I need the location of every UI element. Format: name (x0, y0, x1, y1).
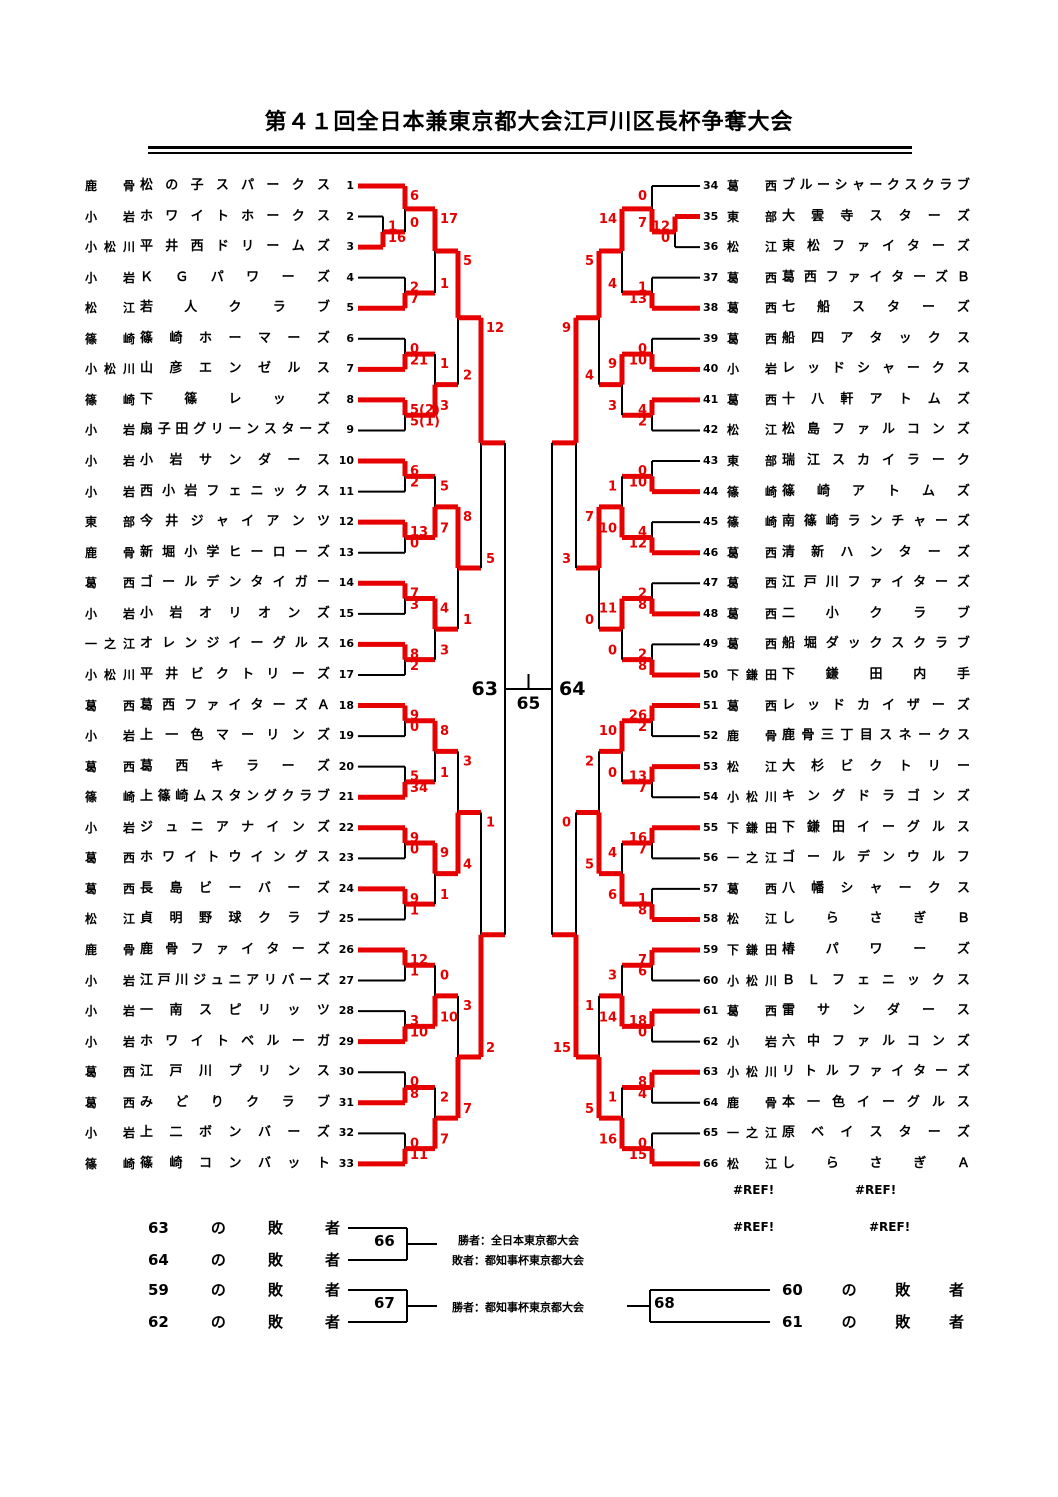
team-name-char: エ (199, 359, 212, 379)
team-name-char: ワ (165, 207, 178, 227)
team-region-char: 小 (85, 818, 97, 838)
match-score: 1 (440, 277, 449, 292)
team-name-char: ァ (206, 696, 219, 716)
team-name-char: ェ (228, 482, 241, 502)
team-name: 江戸川ジュニアリバーズ (140, 971, 330, 991)
team-name-char: ス (957, 329, 970, 349)
loser-row-text: の (211, 1250, 226, 1270)
team-seed: 55 (703, 818, 725, 838)
team-name-char: バ (282, 971, 295, 991)
loser-row: 61の敗者 (782, 1312, 964, 1332)
team-region: 東部 (727, 451, 777, 471)
team-region-char: 江 (765, 848, 777, 868)
team-name-char: ぎ (913, 1154, 926, 1174)
team-region-char: 西 (765, 329, 777, 349)
match-score: 11 (599, 602, 617, 617)
team-seed: 54 (703, 787, 725, 807)
team-name: 平井西ドリームズ (140, 237, 330, 257)
team-name-char: 戸 (804, 573, 817, 593)
match-score: 1 (440, 888, 449, 903)
team-name-char: ー (913, 940, 926, 960)
team-name-char: タ (899, 1123, 912, 1143)
team-region-char: 小 (85, 237, 97, 257)
team-name-char: フ (191, 940, 204, 960)
team-region-char: 鹿 (85, 176, 97, 196)
team-name-char: オ (258, 604, 271, 624)
team-name: ゴールデンタイガー (140, 573, 330, 593)
team-region: 葛西 (727, 1001, 777, 1021)
team-region: 葛西 (727, 298, 777, 318)
team-seed: 24 (330, 879, 354, 899)
team-name-char: ズ (317, 329, 330, 349)
team-seed: 7 (330, 359, 354, 379)
team-name-char: イ (241, 940, 254, 960)
team-region-char: 西 (765, 604, 777, 624)
team-region-char: 岩 (123, 451, 135, 471)
team-region: 小岩 (85, 482, 135, 502)
team-name-char: ら (826, 1154, 839, 1174)
team-name-char: Ａ (957, 1154, 970, 1174)
match68-label: 68 (654, 1294, 675, 1312)
team-name-char: ラ (273, 298, 286, 318)
team-name-char: ト (899, 390, 912, 410)
team-name-char: ン (932, 787, 945, 807)
team-seed: 57 (703, 879, 725, 899)
team-name-char: 田 (175, 420, 188, 440)
team-name-char: 下 (140, 390, 153, 410)
team-name: 本一色イーグルス (782, 1093, 970, 1113)
team-name-char: ク (887, 176, 900, 196)
team-region-char: 岩 (123, 726, 135, 746)
team-seed: 19 (330, 726, 354, 746)
team-region-char: 部 (765, 451, 777, 471)
team-name-char: イ (891, 1062, 904, 1082)
team-name: 大杉ビクトリー (782, 757, 970, 777)
team-name-char: Ｇ (175, 268, 188, 288)
team-region-char: 小 (85, 359, 97, 379)
loser-row-text: の (211, 1280, 226, 1300)
team-seed: 26 (330, 940, 354, 960)
team-name-char: ガ (295, 573, 308, 593)
team-name-char: ク (938, 726, 951, 746)
team-name-char: ー (918, 726, 931, 746)
team-region-char: 一 (727, 1123, 739, 1143)
team-name-char: ワ (869, 940, 882, 960)
team-name-char: 船 (817, 298, 830, 318)
team-name-char: イ (228, 696, 241, 716)
team-region-char: 崎 (123, 390, 135, 410)
team-name-char: ー (817, 176, 830, 196)
team-region-char: 小 (85, 268, 97, 288)
team-name-char: ズ (317, 665, 330, 685)
match-score: 5 (585, 254, 594, 269)
team-name-char: タ (228, 787, 241, 807)
team-name: ホワイトホークス (140, 207, 330, 227)
team-seed: 17 (330, 665, 354, 685)
team-name-char: 島 (807, 420, 820, 440)
team-name-char: 西 (191, 237, 204, 257)
team-name-char: リ (211, 420, 224, 440)
team-region-char: 葛 (727, 1001, 739, 1021)
team-name-char: ム (928, 390, 941, 410)
match-score: 10 (599, 724, 617, 739)
team-name-char: ー (228, 879, 241, 899)
team-region-char: 小 (85, 665, 97, 685)
team-name-char: ス (832, 451, 845, 471)
team-name-char: ト (804, 1062, 817, 1082)
team-name-char: ー (266, 207, 279, 227)
team-name-char: ュ (165, 818, 178, 838)
team-name-char: ン (932, 1032, 945, 1052)
team-region-char: 小 (727, 1032, 739, 1052)
team-name-char: ウ (907, 848, 920, 868)
match-score: 3 (608, 399, 617, 414)
team-seed: 34 (703, 176, 725, 196)
team-name-char: ー (292, 1032, 305, 1052)
team-seed: 28 (330, 1001, 354, 1021)
team-region-char: 小 (85, 207, 97, 227)
team-name-char: キ (211, 757, 224, 777)
team-name-char: イ (273, 573, 286, 593)
match-score: 2 (585, 754, 594, 769)
team-name-char: ー (928, 207, 941, 227)
team-name: 下篠レッズ (140, 390, 330, 410)
team-name-char: 篠 (782, 482, 795, 502)
team-region-char: 川 (123, 665, 135, 685)
team-name-char: ズ (957, 482, 970, 502)
match-score: 3 (440, 399, 449, 414)
team-seed: 9 (330, 420, 354, 440)
team-region: 下鎌田 (727, 665, 777, 685)
team-region-char: 小 (85, 451, 97, 471)
team-name-char: 下 (782, 818, 795, 838)
team-seed: 15 (330, 604, 354, 624)
team-region: 鹿骨 (85, 543, 135, 563)
team-region-char: 葛 (85, 757, 97, 777)
team-name-char: 船 (782, 634, 795, 654)
team-region-char: 松 (727, 757, 739, 777)
team-name-char: ス (264, 420, 277, 440)
team-name-char: ド (832, 696, 845, 716)
team-region: 葛西 (727, 696, 777, 716)
team-name-char: ド (857, 787, 870, 807)
team-region: 葛西 (727, 268, 777, 288)
team-name-char: ラ (907, 451, 920, 471)
team-name-char: ン (292, 726, 305, 746)
match-score: 2 (486, 1041, 495, 1056)
team-name-char: ク (282, 787, 295, 807)
team-name-char: ツ (317, 1001, 330, 1021)
team-name-char: ー (162, 573, 175, 593)
team-region-char: 葛 (85, 848, 97, 868)
team-name-char: イ (882, 451, 895, 471)
team-name-char: ク (246, 1093, 259, 1113)
team-name-char: ァ (216, 940, 229, 960)
match-score: 4 (463, 858, 472, 873)
team-seed: 48 (703, 604, 725, 624)
team-name-char: ズ (317, 420, 330, 440)
team-region-char: 葛 (85, 696, 97, 716)
team-seed: 60 (703, 971, 725, 991)
team-name-char: ブ (782, 176, 795, 196)
team-name-char: バ (258, 1154, 271, 1174)
team-name-char: タ (899, 207, 912, 227)
team-name-char: 山 (140, 359, 153, 379)
team-name-char: ガ (317, 1032, 330, 1052)
team-name: みどりクラブ (140, 1093, 330, 1113)
team-name-char: ト (317, 1154, 330, 1174)
team-name-char: ビ (191, 665, 204, 685)
team-name-char: サ (199, 451, 212, 471)
team-name-char: 鎌 (807, 818, 820, 838)
team-name-char: し (782, 909, 795, 929)
match-score: 4 (440, 602, 449, 617)
team-region-char: 葛 (727, 634, 739, 654)
team-name-char: ァ (857, 237, 870, 257)
team-name-char: 江 (807, 451, 820, 471)
team-name-char: イ (228, 634, 241, 654)
team-name-char: ル (932, 848, 945, 868)
team-name: ホワイトウイングス (140, 848, 330, 868)
team-region: 東部 (727, 207, 777, 227)
team-name-char: ー (282, 268, 295, 288)
team-name-char: ン (292, 818, 305, 838)
team-name-char: ホ (140, 848, 153, 868)
team-name-char: ズ (957, 512, 970, 532)
team-region-char: 西 (765, 1001, 777, 1021)
team-name-char: 軒 (840, 390, 853, 410)
team-region-char: 川 (765, 1062, 777, 1082)
team-name-char: ブ (317, 909, 330, 929)
team-region-char: 田 (765, 665, 777, 685)
team-name-char: 松 (807, 237, 820, 257)
team-name-char: 篠 (140, 329, 153, 349)
team-name-char: ド (216, 237, 229, 257)
team-seed: 11 (330, 482, 354, 502)
team-region-char: 江 (123, 298, 135, 318)
team-region-char: 東 (85, 512, 97, 532)
team-name-char: 貞 (140, 909, 153, 929)
team-region-char: 下 (727, 818, 739, 838)
team-name-char: ッ (807, 696, 820, 716)
team-region: 小松川 (85, 665, 135, 685)
match-score: 1 (608, 479, 617, 494)
team-name-char: 手 (957, 665, 970, 685)
team-name-char: ン (246, 420, 259, 440)
team-name-char: リ (258, 1001, 271, 1021)
team-region: 葛西 (85, 573, 135, 593)
team-name-char: ク (957, 451, 970, 471)
team-name: 七船スターズ (782, 298, 970, 318)
team-name-char: ク (922, 176, 935, 196)
team-region: 松江 (727, 420, 777, 440)
team-region-char: 西 (765, 176, 777, 196)
team-name-char: ー (907, 359, 920, 379)
team-name-char: デ (857, 848, 870, 868)
loser-row: 59の敗者 (148, 1280, 340, 1300)
team-name-char: ン (852, 1001, 865, 1021)
team-seed: 45 (703, 512, 725, 532)
team-region-char: 葛 (727, 329, 739, 349)
match-score: 9 (440, 846, 449, 861)
team-name-char: 田 (869, 665, 882, 685)
loser-row-text: 64 (148, 1250, 169, 1270)
team-name-char: ー (922, 298, 935, 318)
match-score: 10 (440, 1010, 458, 1025)
team-name-char: ー (928, 543, 941, 563)
match-score: 1 (608, 1091, 617, 1106)
team-seed: 42 (703, 420, 725, 440)
team-seed: 6 (330, 329, 354, 349)
team-name-char: バ (258, 879, 271, 899)
team-name: 小岩サンダース (140, 451, 330, 471)
team-name-char: ズ (317, 879, 330, 899)
team-seed: 46 (703, 543, 725, 563)
team-name-char: Ｂ (957, 909, 970, 929)
team-name-char: ス (869, 207, 882, 227)
team-name-char: ル (295, 634, 308, 654)
team-region: 葛西 (727, 176, 777, 196)
team-name: 原ベイスターズ (782, 1123, 970, 1143)
team-name-char: 岩 (169, 451, 182, 471)
team-region-char: 崎 (765, 482, 777, 502)
loser-row-text: 59 (148, 1280, 169, 1300)
loser-row-text: 敗 (268, 1250, 283, 1270)
loser-row: 63の敗者 (148, 1218, 340, 1238)
team-name-char: ス (317, 451, 330, 471)
team-region: 葛西 (85, 1093, 135, 1113)
team-name-char: シ (840, 879, 853, 899)
team-name-char: ズ (957, 1032, 970, 1052)
team-name: 十八軒アトムズ (782, 390, 970, 410)
team-name-char: 崎 (169, 1154, 182, 1174)
team-seed: 4 (330, 268, 354, 288)
team-name-char: ト (216, 1032, 229, 1052)
team-name-char: 鹿 (140, 940, 153, 960)
team-name-char: Ｌ (807, 971, 820, 991)
team-name: しらさぎＢ (782, 909, 970, 929)
team-name-char: タ (282, 420, 295, 440)
team-seed: 58 (703, 909, 725, 929)
team-region-char: 鹿 (727, 1093, 739, 1113)
team-name-char: リ (266, 726, 279, 746)
team-name-char: 東 (782, 237, 795, 257)
ref-error: #REF! (869, 1220, 910, 1234)
team-name-char: ン (228, 1154, 241, 1174)
team-name-char: 西 (804, 268, 817, 288)
match-score: 7 (440, 1133, 449, 1148)
team-name-char: ー (882, 1093, 895, 1113)
team-region-char: 鹿 (85, 543, 97, 563)
team-name-char: 西 (175, 757, 188, 777)
team-region-char: 骨 (765, 726, 777, 746)
team-name-char: 江 (140, 971, 153, 991)
team-name-char: ン (807, 787, 820, 807)
team-region-char: 松 (727, 1154, 739, 1174)
team-name-char: オ (140, 634, 153, 654)
team-name: ブルーシャークスクラブ (782, 176, 970, 196)
team-region-char: 葛 (727, 298, 739, 318)
team-region-char: 岩 (123, 207, 135, 227)
team-name-char: 一 (165, 726, 178, 746)
team-region-char: 篠 (85, 1154, 97, 1174)
team-region: 葛西 (85, 848, 135, 868)
loser-row-text: の (842, 1312, 857, 1332)
team-name-char: ズ (317, 971, 330, 991)
team-region-char: 松 (727, 909, 739, 929)
match-score: 5 (585, 1102, 594, 1117)
team-name-char: ど (175, 1093, 188, 1113)
team-name-char: ァ (857, 1032, 870, 1052)
team-name-char: 崎 (169, 329, 182, 349)
team-name-char: ス (317, 359, 330, 379)
team-name-char: 八 (811, 390, 824, 410)
team-region-char: 西 (123, 757, 135, 777)
team-seed: 62 (703, 1032, 725, 1052)
team-name-char: ー (287, 451, 300, 471)
team-name-char: ニ (882, 971, 895, 991)
team-seed: 29 (330, 1032, 354, 1052)
team-name: キングドラゴンズ (782, 787, 970, 807)
team-seed: 13 (330, 543, 354, 563)
tournament-bracket-page: 第４１回全日本兼東京都大会江戸川区長杯争奪大会 11660271710215(2… (0, 0, 1058, 1497)
team-name-char: ル (266, 1032, 279, 1052)
team-region-char: 葛 (727, 879, 739, 899)
team-name: ＢＬフェニックス (782, 971, 970, 991)
team-name: ゴールデンウルフ (782, 848, 970, 868)
team-region-char: 江 (765, 909, 777, 929)
team-region: 松江 (727, 757, 777, 777)
team-region-char: 岩 (765, 1032, 777, 1052)
team-name-char: ム (292, 237, 305, 257)
team-name-char: ン (869, 543, 882, 563)
match-score: 3 (608, 968, 617, 983)
team-name-char: 人 (184, 298, 197, 318)
team-region: 小岩 (85, 207, 135, 227)
team-name-char: ャ (216, 512, 229, 532)
note-loser-governor: 敗者：都知事杯東京都大会 (452, 1252, 584, 1268)
match-score: 5 (585, 858, 594, 873)
team-name-char: ズ (317, 237, 330, 257)
match-score: 1 (585, 999, 594, 1014)
team-region-char: 松 (85, 909, 97, 929)
team-name: 江戸川プリンス (140, 1062, 330, 1082)
loser-row-text: 者 (949, 1280, 964, 1300)
team-region-char: 葛 (727, 268, 739, 288)
team-name-char: ッ (807, 359, 820, 379)
team-name-char: ア (852, 482, 865, 502)
team-name: 篠崎ホーマーズ (140, 329, 330, 349)
team-name-char: シ (834, 176, 847, 196)
team-name-char: Ｂ (782, 971, 795, 991)
team-region-char: 崎 (123, 1154, 135, 1174)
team-name-char: タ (913, 1062, 926, 1082)
team-name-char: ッ (273, 390, 286, 410)
team-name-char: フ (206, 482, 219, 502)
team-region-char: 川 (123, 359, 135, 379)
team-region-char: 松 (746, 971, 758, 991)
team-region: 小岩 (727, 1032, 777, 1052)
team-region: 葛西 (85, 696, 135, 716)
match-score: 1 (440, 766, 449, 781)
match-score: 0 (562, 815, 571, 830)
team-name: 西小岩フェニックス (140, 482, 330, 502)
team-name-char: ズ (317, 268, 330, 288)
team-name-char: フ (832, 1032, 845, 1052)
team-name-char: ぎ (913, 909, 926, 929)
team-name-char: 井 (165, 665, 178, 685)
match-score: 15 (553, 1041, 571, 1056)
